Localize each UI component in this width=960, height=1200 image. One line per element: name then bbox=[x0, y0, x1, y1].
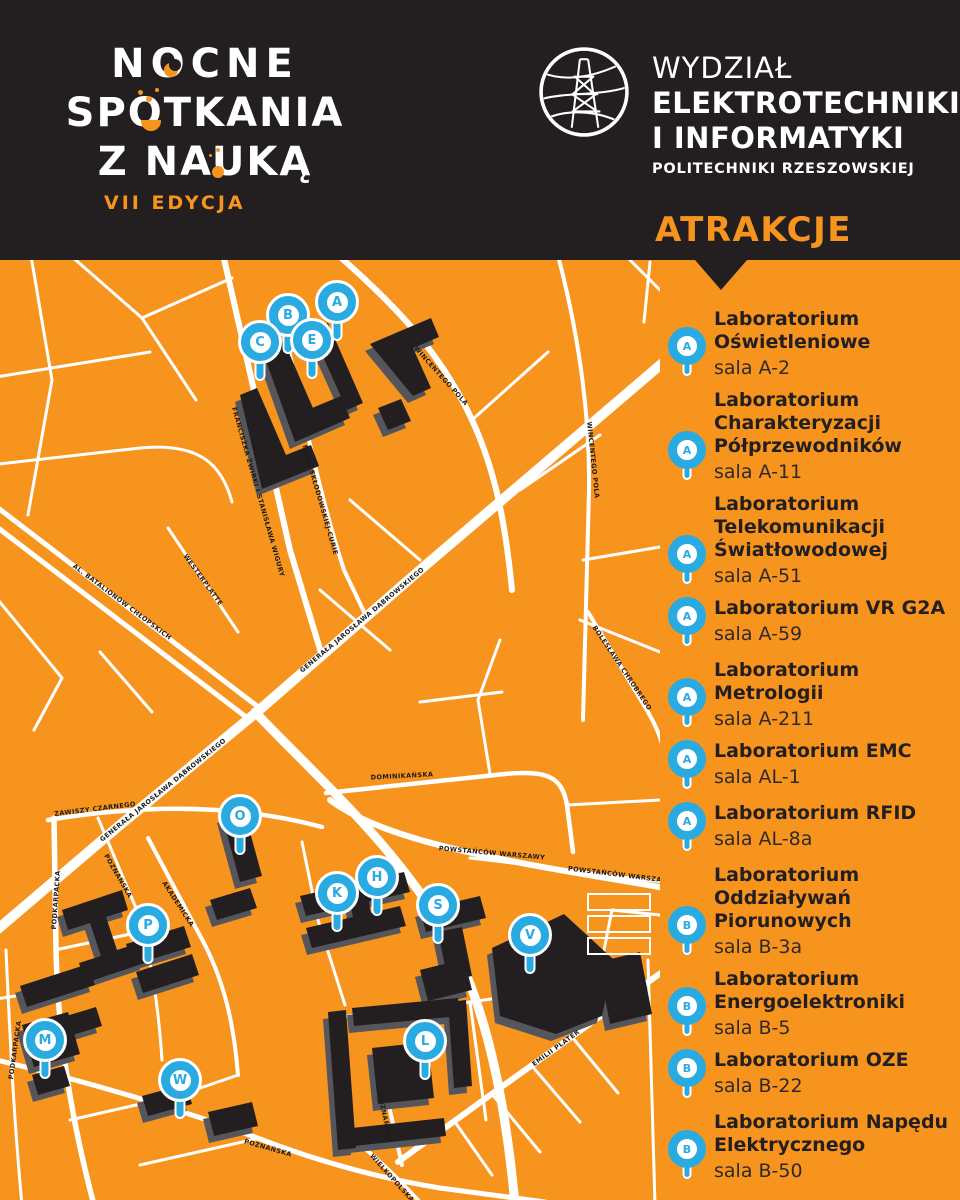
attraction-pin-icon: A bbox=[668, 597, 706, 635]
attraction-pin-icon: B bbox=[668, 987, 706, 1025]
map-pin-O: O bbox=[218, 794, 262, 838]
map-roads-buildings-graphic bbox=[0, 260, 660, 1200]
attraction-name: Laboratorium Metrologii bbox=[714, 659, 859, 705]
attraction-room: sala A-59 bbox=[714, 622, 945, 646]
map-pin-C: C bbox=[238, 320, 282, 364]
attraction-item: B Laboratorium Oddziaływań Piorunowych s… bbox=[660, 864, 960, 959]
attraction-room: sala AL-1 bbox=[714, 765, 912, 789]
faculty-line4: POLITECHNIKI RZESZOWSKIEJ bbox=[652, 161, 960, 177]
event-logo-line1: NOCNE bbox=[40, 40, 370, 89]
attraction-item: B Laboratorium Napędu Elektrycznego sala… bbox=[660, 1111, 960, 1183]
faculty-name: WYDZIAŁ ELEKTROTECHNIKI I INFORMATYKI PO… bbox=[652, 46, 960, 177]
attraction-room: sala A-11 bbox=[714, 460, 902, 484]
attraction-item: A Laboratorium EMC sala AL-1 bbox=[660, 740, 960, 793]
map-pin-K: K bbox=[315, 871, 359, 915]
attraction-name: Laboratorium OZE bbox=[714, 1049, 909, 1072]
map-pin-L: L bbox=[403, 1019, 447, 1063]
attraction-name: Laboratorium Charakteryzacji Półprzewodn… bbox=[714, 389, 902, 458]
attraction-pin-letter: B bbox=[683, 919, 691, 932]
map-pin-H: H bbox=[355, 855, 399, 899]
attraction-item: A Laboratorium Charakteryzacji Półprzewo… bbox=[660, 389, 960, 484]
map-pin-P: P bbox=[126, 903, 170, 947]
attraction-pin-letter: A bbox=[683, 691, 692, 704]
attraction-pin-letter: A bbox=[683, 610, 692, 623]
attraction-pin-icon: A bbox=[668, 802, 706, 840]
map-pin-V: V bbox=[508, 913, 552, 957]
attraction-name: Laboratorium Napędu Elektrycznego bbox=[714, 1111, 948, 1157]
attraction-room: sala A-211 bbox=[714, 707, 859, 731]
pointer-triangle bbox=[695, 260, 747, 290]
attractions-title: ATRAKCJE bbox=[655, 210, 852, 250]
attraction-pin-letter: B bbox=[683, 1062, 691, 1075]
event-logo: NOCNE SPOTKANIA Z NAUKĄ VII EDYCJA bbox=[40, 40, 370, 214]
attraction-item: A Laboratorium Metrologii sala A-211 bbox=[660, 659, 960, 731]
attraction-name: Laboratorium VR G2A bbox=[714, 597, 945, 620]
faculty-line2: ELEKTROTECHNIKI bbox=[652, 86, 960, 121]
faculty-line3: I INFORMATYKI bbox=[652, 121, 960, 156]
attraction-pin-icon: B bbox=[668, 906, 706, 944]
attraction-pin-icon: A bbox=[668, 431, 706, 469]
attraction-pin-letter: A bbox=[683, 815, 692, 828]
attraction-name: Laboratorium EMC bbox=[714, 740, 912, 763]
event-edition-label: VII EDYCJA bbox=[40, 192, 370, 214]
event-logo-line2: SPOTKANIA bbox=[40, 89, 370, 138]
attraction-room: sala AL-8a bbox=[714, 827, 916, 851]
attraction-item: A Laboratorium VR G2A sala A-59 bbox=[660, 597, 960, 650]
attraction-pin-icon: B bbox=[668, 1130, 706, 1168]
attraction-name: Laboratorium Energoelektroniki bbox=[714, 968, 905, 1014]
attraction-pin-letter: A bbox=[683, 340, 692, 353]
attraction-item: A Laboratorium Telekomunikacji Światłowo… bbox=[660, 493, 960, 588]
attraction-pin-letter: B bbox=[683, 1143, 691, 1156]
campus-map: FRANCISZKA ŻWIRKI I STANISŁAWA WIGURYMAR… bbox=[0, 260, 660, 1200]
attraction-item: B Laboratorium OZE sala B-22 bbox=[660, 1049, 960, 1102]
attraction-pin-icon: A bbox=[668, 535, 706, 573]
faculty-logo: WYDZIAŁ ELEKTROTECHNIKI I INFORMATYKI PO… bbox=[538, 46, 960, 177]
attractions-panel: A Laboratorium Oświetleniowe sala A-2 A … bbox=[660, 260, 960, 1200]
map-pin-E: E bbox=[290, 318, 334, 362]
attractions-list: A Laboratorium Oświetleniowe sala A-2 A … bbox=[660, 308, 960, 1183]
attraction-pin-icon: A bbox=[668, 327, 706, 365]
attraction-pin-letter: A bbox=[683, 444, 692, 457]
attraction-room: sala B-50 bbox=[714, 1159, 948, 1183]
attraction-pin-letter: A bbox=[683, 548, 692, 561]
attraction-room: sala A-51 bbox=[714, 564, 888, 588]
attraction-pin-letter: B bbox=[683, 1000, 691, 1013]
attraction-item: B Laboratorium Energoelektroniki sala B-… bbox=[660, 968, 960, 1040]
attraction-room: sala B-5 bbox=[714, 1016, 905, 1040]
attraction-name: Laboratorium RFID bbox=[714, 802, 916, 825]
pylon-logo-icon bbox=[538, 46, 630, 138]
attraction-name: Laboratorium Telekomunikacji Światłowodo… bbox=[714, 493, 888, 562]
attraction-room: sala A-2 bbox=[714, 356, 870, 380]
map-pin-M: M bbox=[23, 1018, 67, 1062]
event-logo-line3: Z NAUKĄ bbox=[40, 138, 370, 187]
attraction-room: sala B-3a bbox=[714, 935, 859, 959]
map-pin-S: S bbox=[416, 883, 460, 927]
attraction-pin-icon: B bbox=[668, 1049, 706, 1087]
attraction-pin-letter: A bbox=[683, 753, 692, 766]
attraction-pin-icon: A bbox=[668, 740, 706, 778]
attraction-room: sala B-22 bbox=[714, 1074, 909, 1098]
map-pin-W: W bbox=[158, 1058, 202, 1102]
faculty-line1: WYDZIAŁ bbox=[652, 50, 960, 86]
attraction-pin-icon: A bbox=[668, 678, 706, 716]
attraction-name: Laboratorium Oświetleniowe bbox=[714, 308, 870, 354]
buildings bbox=[15, 318, 652, 1157]
attraction-item: A Laboratorium RFID sala AL-8a bbox=[660, 802, 960, 855]
attraction-name: Laboratorium Oddziaływań Piorunowych bbox=[714, 864, 859, 933]
attraction-item: A Laboratorium Oświetleniowe sala A-2 bbox=[660, 308, 960, 380]
header: NOCNE SPOTKANIA Z NAUKĄ VII EDYCJA WYD bbox=[0, 0, 960, 260]
